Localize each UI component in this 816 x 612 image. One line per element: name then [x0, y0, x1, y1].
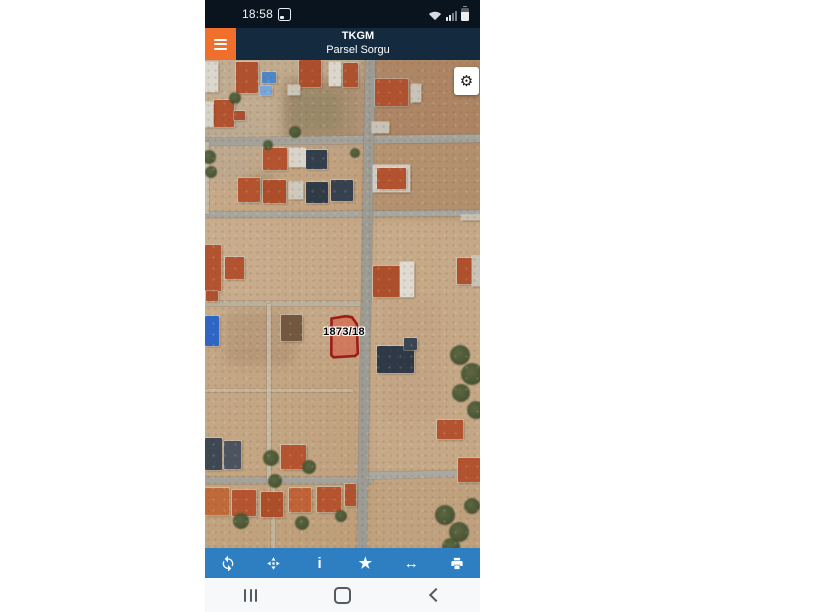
building — [306, 182, 328, 203]
info-icon: i — [317, 556, 321, 571]
terrain-patch — [370, 218, 480, 478]
building — [377, 168, 406, 189]
tree — [205, 166, 217, 178]
building — [373, 165, 410, 192]
building — [411, 84, 421, 102]
building — [234, 111, 245, 120]
favorite-button[interactable]: ★ — [342, 548, 388, 578]
locate-button[interactable] — [251, 548, 297, 578]
building — [343, 63, 358, 87]
building — [288, 85, 300, 95]
building — [214, 100, 234, 127]
satellite-map[interactable]: 1873/18 ⚙ — [205, 60, 480, 548]
parcel-polygon[interactable] — [331, 316, 358, 357]
back-icon — [429, 588, 443, 602]
building — [372, 122, 389, 133]
tree — [449, 522, 469, 542]
tree — [452, 384, 470, 402]
refresh-icon — [220, 555, 236, 571]
hamburger-menu-button[interactable] — [205, 28, 236, 60]
building — [236, 62, 258, 93]
tree — [302, 460, 316, 474]
tree — [295, 516, 309, 530]
building — [263, 180, 286, 203]
building — [281, 445, 306, 469]
terrain-patch — [225, 310, 295, 365]
terrain-patch — [205, 60, 375, 150]
android-nav-bar — [205, 578, 480, 612]
terrain-patch — [367, 148, 480, 216]
terrain-patch — [370, 472, 480, 548]
battery-icon — [461, 8, 469, 21]
building — [289, 148, 306, 167]
tree — [233, 513, 249, 529]
road — [205, 210, 480, 218]
tree — [335, 510, 347, 522]
building — [375, 79, 408, 106]
terrain-patch — [380, 300, 440, 420]
tree — [464, 498, 480, 514]
tree — [289, 126, 301, 138]
building — [289, 488, 311, 512]
recents-icon — [244, 589, 257, 602]
building — [232, 490, 256, 516]
building — [261, 492, 283, 517]
map-texture — [205, 60, 480, 548]
app-subtitle: Parsel Sorgu — [326, 44, 390, 58]
building — [205, 316, 219, 346]
building — [437, 420, 463, 439]
road — [267, 304, 271, 482]
tree — [467, 401, 480, 419]
phone-screen: 18:58 TKGM Parsel Sorgu 18 — [205, 0, 480, 612]
building — [205, 62, 218, 92]
building — [317, 487, 341, 512]
tree — [263, 140, 273, 150]
info-button[interactable]: i — [297, 548, 343, 578]
terrain-patch — [287, 90, 342, 132]
terrain-patch — [283, 78, 363, 143]
tree — [450, 345, 470, 365]
building — [306, 150, 327, 169]
status-bar: 18:58 — [205, 0, 480, 28]
road — [205, 477, 373, 484]
home-button[interactable] — [297, 578, 389, 612]
building — [329, 62, 341, 86]
building — [461, 215, 480, 220]
app-header: TKGM Parsel Sorgu — [205, 28, 480, 60]
tree — [229, 92, 241, 104]
terrain-patch — [205, 315, 370, 490]
wifi-icon — [428, 10, 442, 21]
print-button[interactable] — [434, 548, 480, 578]
terrain-patch — [205, 120, 255, 180]
tree — [268, 474, 282, 488]
tree — [435, 505, 455, 525]
building — [206, 291, 218, 301]
road — [271, 484, 275, 548]
tree — [350, 148, 360, 158]
measure-button[interactable]: ↔ — [388, 548, 434, 578]
building — [281, 315, 302, 341]
tree — [461, 363, 480, 385]
building — [457, 258, 473, 284]
recents-button[interactable] — [205, 578, 297, 612]
status-time: 18:58 — [242, 7, 273, 21]
building — [262, 72, 276, 83]
building — [373, 266, 400, 297]
locate-icon — [266, 556, 281, 571]
building — [205, 438, 222, 470]
building — [400, 262, 414, 297]
gear-icon: ⚙ — [460, 72, 473, 90]
back-button[interactable] — [388, 578, 480, 612]
building — [458, 458, 480, 482]
road — [367, 470, 480, 479]
terrain-patch — [205, 218, 370, 348]
building — [238, 178, 260, 202]
terrain-patch — [243, 176, 277, 196]
building — [377, 346, 414, 373]
refresh-button[interactable] — [205, 548, 251, 578]
tree — [442, 538, 460, 548]
building — [260, 86, 272, 95]
building — [472, 256, 480, 286]
building — [345, 484, 356, 506]
building — [299, 60, 321, 87]
building — [263, 148, 287, 170]
star-icon: ★ — [359, 556, 372, 571]
road — [205, 134, 480, 146]
road — [205, 301, 368, 306]
hamburger-icon — [214, 39, 227, 41]
terrain-patch — [205, 480, 380, 548]
parcel-label: 1873/18 — [317, 326, 371, 338]
building — [331, 180, 353, 201]
printer-icon — [449, 556, 465, 571]
building — [205, 102, 213, 127]
building — [224, 441, 241, 469]
tree — [205, 150, 216, 164]
map-toolbar: i ★ ↔ — [205, 548, 480, 578]
signal-icon — [446, 10, 457, 21]
building — [205, 245, 221, 291]
tree — [263, 450, 279, 466]
screenshot-icon — [278, 8, 291, 21]
app-title: TKGM — [342, 30, 374, 44]
horizontal-arrow-icon: ↔ — [404, 556, 419, 571]
building — [205, 488, 229, 515]
home-icon — [334, 587, 351, 604]
map-settings-button[interactable]: ⚙ — [454, 67, 479, 95]
building — [289, 182, 303, 199]
road — [205, 389, 353, 392]
building — [225, 257, 244, 279]
road — [357, 60, 376, 548]
parcel-overlay — [205, 60, 480, 548]
building — [404, 338, 417, 350]
road — [205, 142, 209, 214]
